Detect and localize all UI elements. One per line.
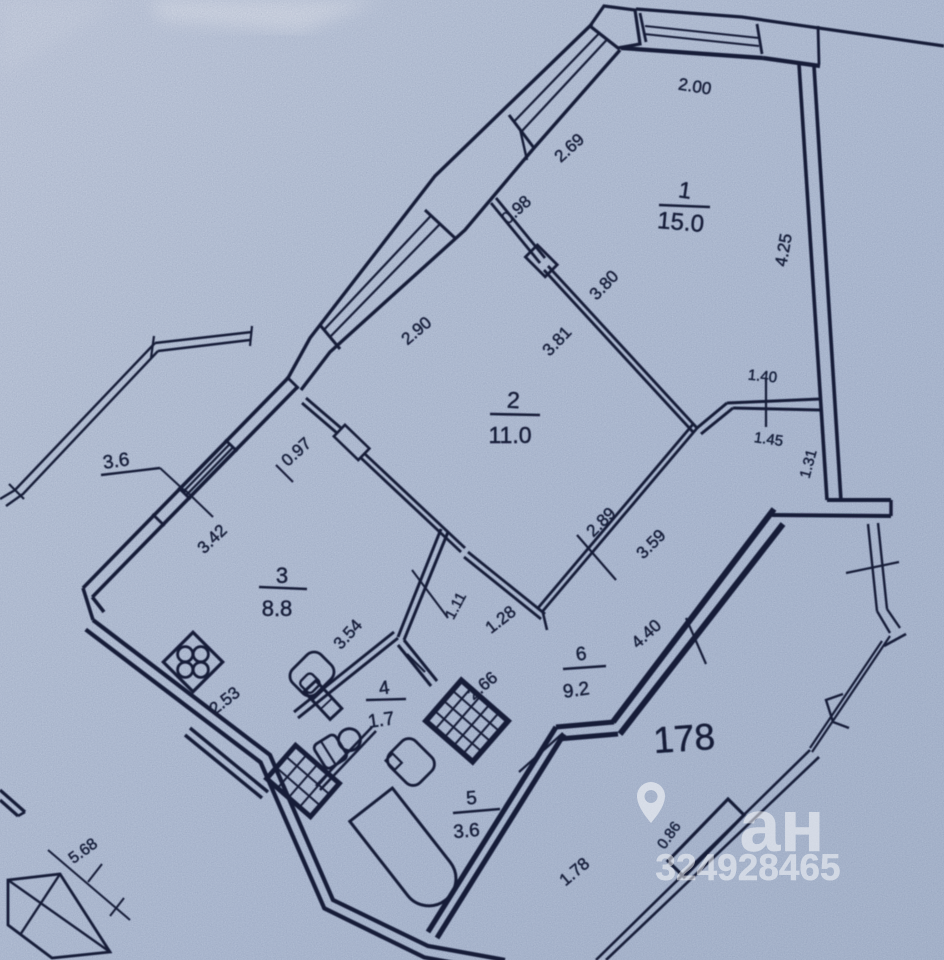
svg-text:3.6: 3.6 [102,449,131,473]
svg-text:15.0: 15.0 [656,207,705,238]
svg-text:2: 2 [506,387,520,414]
svg-text:3: 3 [276,563,288,588]
svg-text:178: 178 [652,716,716,761]
svg-text:1.7: 1.7 [367,708,396,732]
svg-text:324928465: 324928465 [655,847,840,888]
svg-text:5: 5 [465,788,477,810]
svg-text:9.2: 9.2 [562,678,591,702]
svg-text:1.40: 1.40 [747,367,778,387]
svg-text:3.6: 3.6 [452,820,480,843]
svg-text:8.8: 8.8 [262,596,293,621]
svg-text:11.0: 11.0 [488,422,531,448]
